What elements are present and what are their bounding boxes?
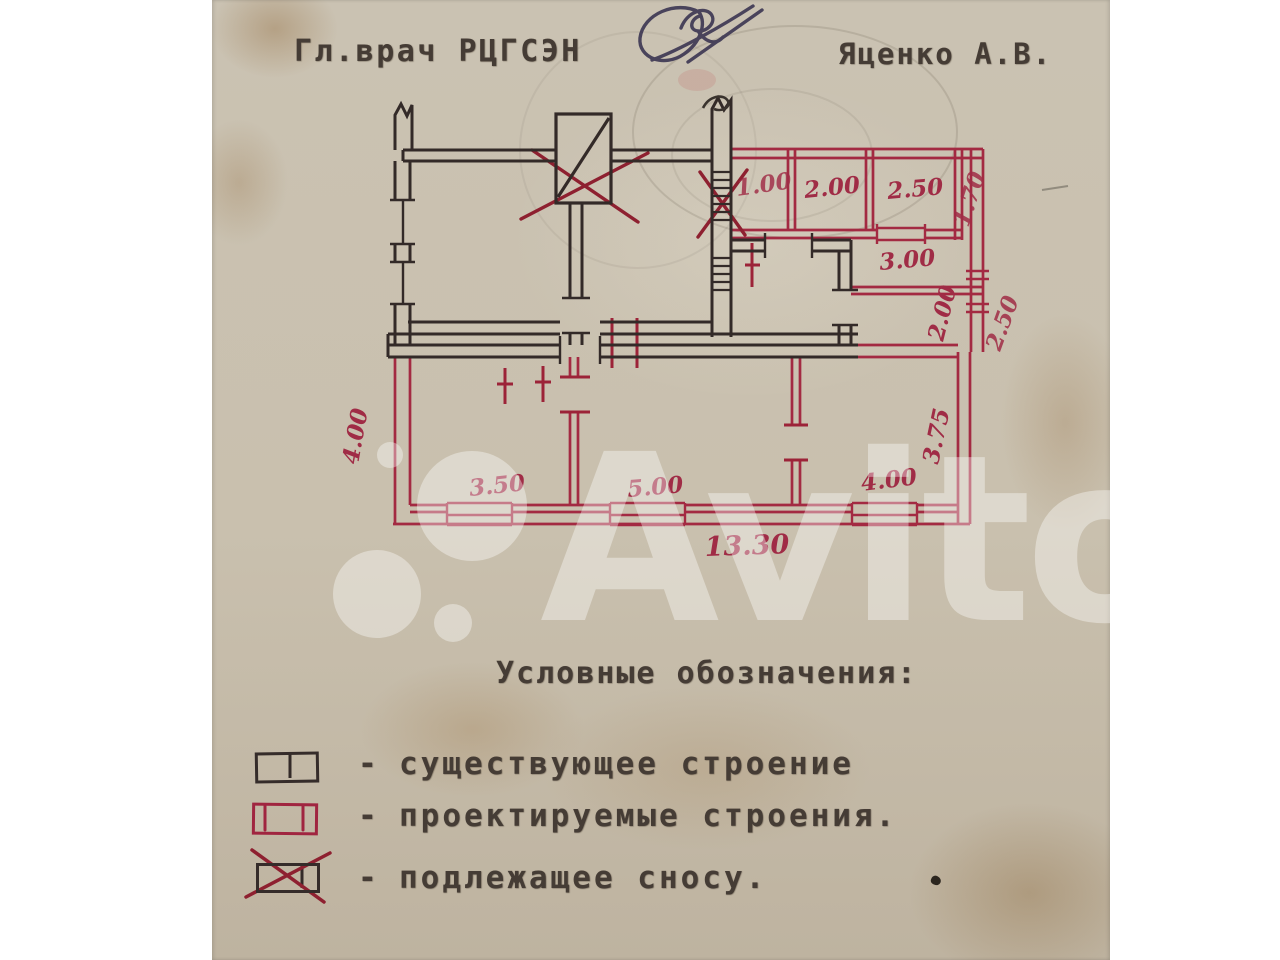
legend-dash: - xyxy=(358,798,380,834)
dim-top-room-2: 2.00 xyxy=(802,171,862,204)
dim-bottom-room-1: 3.50 xyxy=(468,469,527,502)
dim-right-mid: 2.00 xyxy=(922,283,962,345)
legend-item-projected: проектируемые строения. xyxy=(399,798,897,834)
legend-item-demolish: подлежащее сносу. xyxy=(399,860,767,896)
legend-item-existing: существующее строение xyxy=(399,746,854,782)
dim-right-outer: 2.50 xyxy=(980,292,1025,355)
dim-bottom-total: 13.30 xyxy=(704,529,790,563)
legend-title: Условные обозначения: xyxy=(496,656,917,691)
header-approver-name: Яценко А.В. xyxy=(838,37,1052,71)
legend-dash: - xyxy=(358,746,380,782)
dim-top-room-1: 1.00 xyxy=(734,167,793,202)
legend-symbol-demolish xyxy=(256,863,320,893)
stove-flue-rungs xyxy=(712,172,731,290)
dim-bottom-room-3: 4.00 xyxy=(859,463,918,497)
scanned-document-photo: 1.00 2.00 2.50 1.70 3.00 2.00 2.50 3.75 … xyxy=(0,0,1280,960)
chimney-break-icon xyxy=(395,98,731,150)
header-approver-title: Гл.врач РЦГСЭН xyxy=(294,34,582,69)
dim-top-room-3: 2.50 xyxy=(885,173,944,205)
dim-bottom-room-2: 5.00 xyxy=(626,471,684,503)
legend-symbol-projected xyxy=(252,803,318,836)
legend-dash: - xyxy=(358,860,380,896)
legend-symbol-existing xyxy=(255,751,320,783)
porch-to-demolish xyxy=(556,114,611,203)
dim-mid-room: 3.00 xyxy=(878,244,936,276)
dim-left-side: 4.00 xyxy=(337,406,373,466)
red-door-marks xyxy=(497,243,808,460)
dim-right-lower: 3.75 xyxy=(917,406,955,466)
